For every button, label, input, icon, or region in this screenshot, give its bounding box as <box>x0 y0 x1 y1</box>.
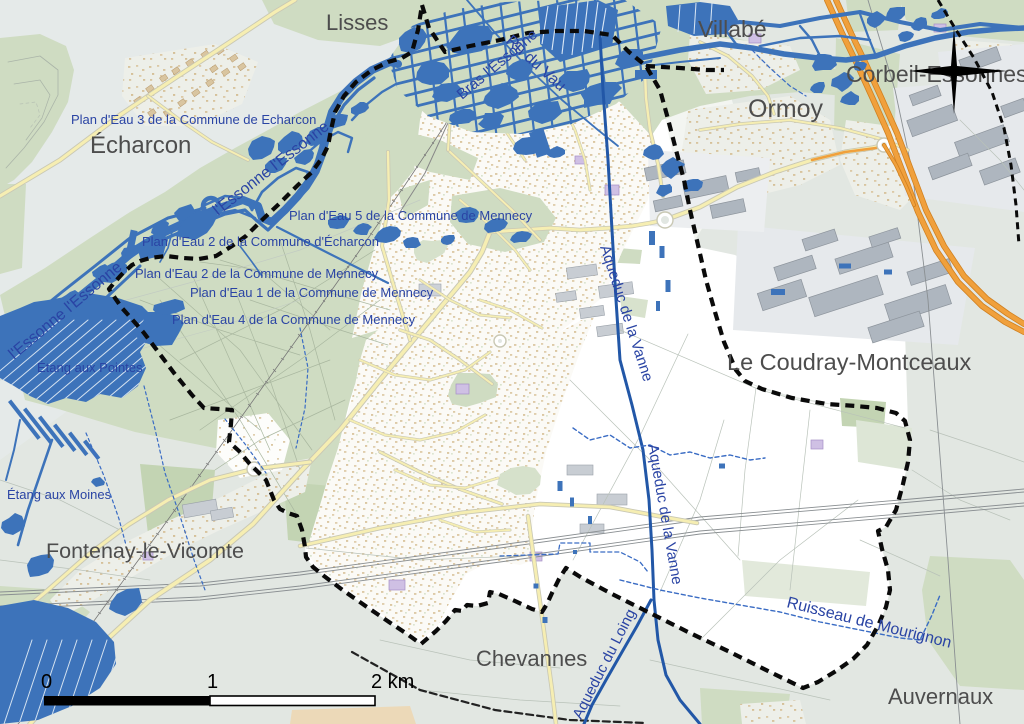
svg-text:Écharcon: Écharcon <box>90 132 191 159</box>
svg-text:Villabé: Villabé <box>698 16 767 42</box>
svg-text:Auvernaux: Auvernaux <box>888 684 993 709</box>
svg-text:Lisses: Lisses <box>326 10 388 35</box>
svg-text:Plan d'Eau 3 de la Commune de: Plan d'Eau 3 de la Commune de Echarcon <box>71 112 316 127</box>
svg-text:Chevannes: Chevannes <box>476 646 587 671</box>
svg-text:Le Coudray-Montceaux: Le Coudray-Montceaux <box>727 349 972 375</box>
svg-text:Étang aux Pointes: Étang aux Pointes <box>37 360 143 375</box>
svg-text:1: 1 <box>207 671 218 693</box>
svg-text:Plan d'Eau 2 de la Commune d'É: Plan d'Eau 2 de la Commune d'Écharcon <box>142 234 379 249</box>
svg-text:2 km: 2 km <box>371 671 414 693</box>
svg-text:Plan d'Eau 2 de la Commune de: Plan d'Eau 2 de la Commune de Mennecy <box>135 266 379 281</box>
svg-text:0: 0 <box>41 671 52 693</box>
svg-text:Plan d'Eau 1 de la Commune de: Plan d'Eau 1 de la Commune de Mennecy <box>190 285 434 300</box>
svg-text:Plan d'Eau 4 de la Commune de: Plan d'Eau 4 de la Commune de Mennecy <box>172 312 416 327</box>
svg-text:Plan d'Eau 5 de la Commune de: Plan d'Eau 5 de la Commune de Mennecy <box>289 208 533 223</box>
svg-text:Fontenay-le-Vicomte: Fontenay-le-Vicomte <box>46 539 244 563</box>
svg-text:Étang aux Moines: Étang aux Moines <box>7 487 112 502</box>
svg-text:Ormoy: Ormoy <box>748 95 824 123</box>
